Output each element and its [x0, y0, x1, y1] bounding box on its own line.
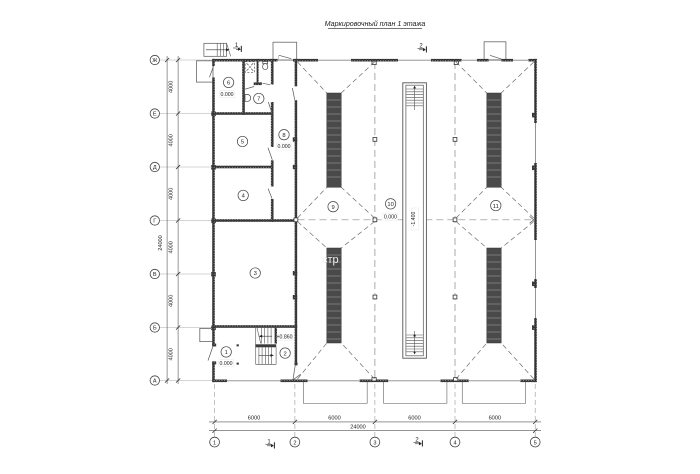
- svg-text:0.000: 0.000: [384, 214, 397, 220]
- svg-text:6000: 6000: [248, 416, 260, 422]
- svg-text:4000: 4000: [169, 81, 175, 93]
- svg-text:4000: 4000: [169, 241, 175, 253]
- svg-text:1: 1: [213, 440, 216, 446]
- svg-text:9: 9: [331, 205, 334, 211]
- svg-text:0.000: 0.000: [221, 92, 234, 98]
- svg-text:6000: 6000: [408, 416, 420, 422]
- svg-text:11: 11: [493, 204, 499, 210]
- svg-text:10: 10: [387, 202, 393, 208]
- svg-text:3: 3: [254, 271, 257, 277]
- svg-text:В: В: [153, 272, 157, 278]
- svg-text:Г: Г: [153, 219, 156, 225]
- svg-text:5: 5: [534, 440, 537, 446]
- svg-text:8: 8: [282, 133, 285, 139]
- svg-text:4: 4: [453, 440, 456, 446]
- svg-text:4000: 4000: [169, 188, 175, 200]
- svg-text:0.000: 0.000: [220, 361, 233, 367]
- svg-text:6000: 6000: [489, 416, 501, 422]
- svg-text:3: 3: [373, 440, 376, 446]
- svg-text:Б: Б: [153, 326, 157, 332]
- svg-text:2: 2: [293, 440, 296, 446]
- svg-text:Маркировочный план 1 этажа: Маркировочный план 1 этажа: [325, 20, 426, 28]
- svg-text:24000: 24000: [158, 235, 164, 251]
- svg-text:5: 5: [241, 140, 244, 146]
- svg-text:Е: Е: [153, 112, 157, 118]
- svg-text:А: А: [153, 379, 157, 385]
- svg-text:+0.860: +0.860: [276, 335, 292, 341]
- svg-text:-1.400: -1.400: [411, 212, 417, 227]
- svg-text:6000: 6000: [328, 416, 340, 422]
- svg-text:4000: 4000: [169, 134, 175, 146]
- svg-text:6: 6: [227, 81, 230, 87]
- svg-text:24000: 24000: [350, 425, 366, 431]
- svg-text:Ж: Ж: [152, 58, 158, 64]
- svg-text:4000: 4000: [169, 295, 175, 307]
- svg-text:7: 7: [257, 97, 260, 103]
- svg-text:2: 2: [283, 351, 286, 357]
- svg-text:1: 1: [225, 350, 228, 356]
- svg-text:стр: стр: [322, 254, 339, 266]
- svg-text:Д: Д: [153, 165, 157, 171]
- svg-text:4000: 4000: [169, 348, 175, 360]
- svg-text:0.000: 0.000: [278, 144, 291, 150]
